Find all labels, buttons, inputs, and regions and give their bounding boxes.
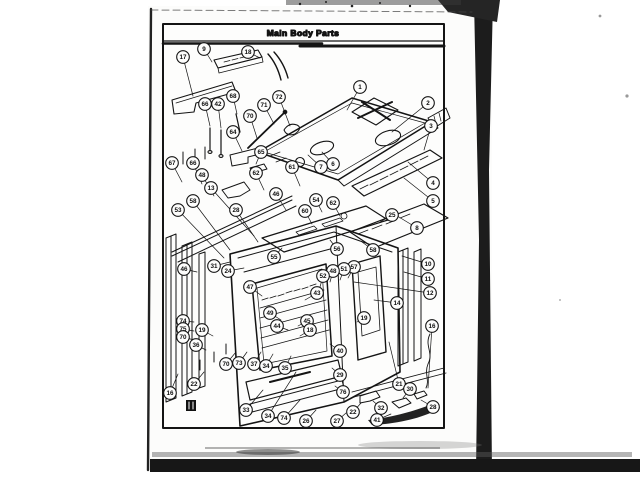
svg-text:74: 74 [280,415,288,422]
svg-text:37: 37 [250,361,258,368]
callout-70: 70 [244,110,257,123]
callout-42: 42 [212,98,225,111]
svg-text:67: 67 [168,160,176,167]
svg-text:1: 1 [358,84,362,91]
callout-14: 14 [391,297,404,310]
callout-24: 24 [222,265,235,278]
callout-74: 74 [278,412,291,425]
svg-text:72: 72 [275,94,283,101]
page-top-edge [151,10,472,12]
callout-54: 54 [310,194,323,207]
svg-text:34: 34 [262,363,270,370]
callout-26: 26 [300,415,313,428]
svg-text:4: 4 [431,180,435,187]
svg-text:54: 54 [312,197,320,204]
callout-9: 9 [198,43,211,56]
svg-text:41: 41 [373,417,381,424]
callout-16: 16 [164,387,177,400]
svg-text:19: 19 [360,315,368,322]
callout-17: 17 [177,51,190,64]
callout-7: 7 [315,161,328,174]
callout-60: 60 [299,205,312,218]
callout-10: 10 [422,258,435,271]
callout-64: 64 [227,126,240,139]
callout-46: 46 [178,263,191,276]
callout-36: 36 [190,339,203,352]
svg-text:34: 34 [264,413,272,420]
svg-text:11: 11 [425,276,432,283]
callout-40: 40 [334,345,347,358]
callout-52: 52 [317,270,330,283]
scanned-catalog-photo: Main Body Parts [0,0,640,480]
svg-text:16: 16 [428,323,436,330]
callout-46: 46 [270,188,283,201]
svg-text:29: 29 [336,372,344,379]
svg-text:21: 21 [395,381,403,388]
svg-text:22: 22 [190,381,198,388]
svg-text:28: 28 [232,207,240,214]
svg-text:35: 35 [281,365,289,372]
callout-28: 28 [427,401,440,414]
svg-text:17: 17 [179,54,187,61]
callout-31: 31 [208,260,221,273]
callout-22: 22 [188,378,201,391]
callout-62: 62 [327,197,340,210]
callout-55: 55 [268,251,281,264]
callout-66: 66 [199,98,212,111]
svg-text:43: 43 [313,290,321,297]
callout-18: 18 [304,324,317,337]
svg-text:76: 76 [339,389,347,396]
callout-18: 18 [242,46,255,59]
svg-text:70: 70 [179,334,187,341]
svg-text:53: 53 [174,207,182,214]
svg-text:65: 65 [257,149,265,156]
callout-4: 4 [427,177,440,190]
page-left-edge [148,9,151,470]
svg-text:62: 62 [252,170,260,177]
svg-text:64: 64 [229,129,237,136]
callout-62: 62 [250,167,263,180]
svg-text:58: 58 [189,198,197,205]
callout-51: 51 [338,263,351,276]
svg-text:42: 42 [214,101,222,108]
svg-text:56: 56 [333,246,341,253]
callout-53: 53 [172,204,185,217]
callout-56: 56 [331,243,344,256]
svg-text:13: 13 [207,185,215,192]
svg-text:18: 18 [306,327,314,334]
svg-text:5: 5 [431,198,435,205]
svg-text:25: 25 [388,212,396,219]
callout-65: 65 [255,146,268,159]
svg-text:60: 60 [301,208,309,215]
svg-text:36: 36 [192,342,200,349]
callout-8: 8 [411,222,424,235]
callout-35: 35 [279,362,292,375]
callout-41: 41 [371,414,384,427]
callout-44: 44 [271,320,284,333]
page-title: Main Body Parts [267,28,340,38]
svg-text:27: 27 [333,418,341,425]
callout-58: 58 [187,195,200,208]
svg-text:10: 10 [424,261,432,268]
svg-text:24: 24 [224,268,232,275]
svg-text:3: 3 [429,123,433,130]
svg-text:8: 8 [415,225,419,232]
callout-30: 30 [404,383,417,396]
callout-37: 37 [248,358,261,371]
svg-text:2: 2 [426,100,430,107]
svg-text:68: 68 [229,93,237,100]
callout-22: 22 [347,406,360,419]
svg-text:31: 31 [210,263,218,270]
svg-text:30: 30 [406,386,414,393]
svg-text:61: 61 [288,164,296,171]
callout-71: 71 [258,99,271,112]
callout-68: 68 [227,90,240,103]
svg-text:55: 55 [270,254,278,261]
callout-73: 73 [233,357,246,370]
callout-48: 48 [196,169,209,182]
svg-text:57: 57 [350,264,358,271]
callout-11: 11 [422,273,435,286]
svg-text:7: 7 [319,164,323,171]
callout-27: 27 [331,415,344,428]
svg-text:71: 71 [260,102,268,109]
callout-58: 58 [367,244,380,257]
callout-1: 1 [354,81,367,94]
callout-61: 61 [286,161,299,174]
svg-text:26: 26 [302,418,310,425]
callout-34: 34 [260,360,273,373]
svg-text:58: 58 [369,247,377,254]
callout-70: 70 [177,331,190,344]
svg-text:51: 51 [340,266,348,273]
svg-text:44: 44 [273,323,281,330]
svg-text:49: 49 [266,310,274,317]
svg-text:16: 16 [166,390,174,397]
svg-text:70: 70 [246,113,254,120]
svg-text:46: 46 [272,191,280,198]
callout-19: 19 [196,324,209,337]
callout-16: 16 [426,320,439,333]
svg-text:66: 66 [189,160,197,167]
svg-text:9: 9 [202,46,206,53]
callout-43: 43 [311,287,324,300]
callout-72: 72 [273,91,286,104]
callout-32: 32 [375,402,388,415]
svg-text:40: 40 [336,348,344,355]
svg-text:48: 48 [198,172,206,179]
callout-6: 6 [327,158,340,171]
svg-text:18: 18 [244,49,252,56]
exploded-parts-diagram: Main Body Parts [0,0,640,480]
callout-25: 25 [386,209,399,222]
callout-19: 19 [358,312,371,325]
svg-text:62: 62 [329,200,337,207]
callout-29: 29 [334,369,347,382]
svg-text:70: 70 [222,361,230,368]
svg-text:46: 46 [180,266,188,273]
callout-49: 49 [264,307,277,320]
callout-5: 5 [427,195,440,208]
callout-47: 47 [244,281,257,294]
svg-text:14: 14 [393,300,401,307]
svg-text:6: 6 [331,161,335,168]
svg-text:52: 52 [319,273,327,280]
callout-76: 76 [337,386,350,399]
callout-66: 66 [187,157,200,170]
callout-3: 3 [425,120,438,133]
callout-12: 12 [424,287,437,300]
svg-text:66: 66 [201,101,209,108]
svg-text:48: 48 [329,268,337,275]
svg-text:73: 73 [235,360,243,367]
callout-70: 70 [220,358,233,371]
callout-33: 33 [240,404,253,417]
svg-text:33: 33 [242,407,250,414]
svg-text:32: 32 [377,405,385,412]
callout-28: 28 [230,204,243,217]
svg-text:22: 22 [349,409,357,416]
svg-text:19: 19 [198,327,206,334]
callout-67: 67 [166,157,179,170]
svg-text:28: 28 [429,404,437,411]
callout-13: 13 [205,182,218,195]
callout-34: 34 [262,410,275,423]
svg-text:12: 12 [426,290,434,297]
callout-2: 2 [422,97,435,110]
svg-text:47: 47 [246,284,254,291]
